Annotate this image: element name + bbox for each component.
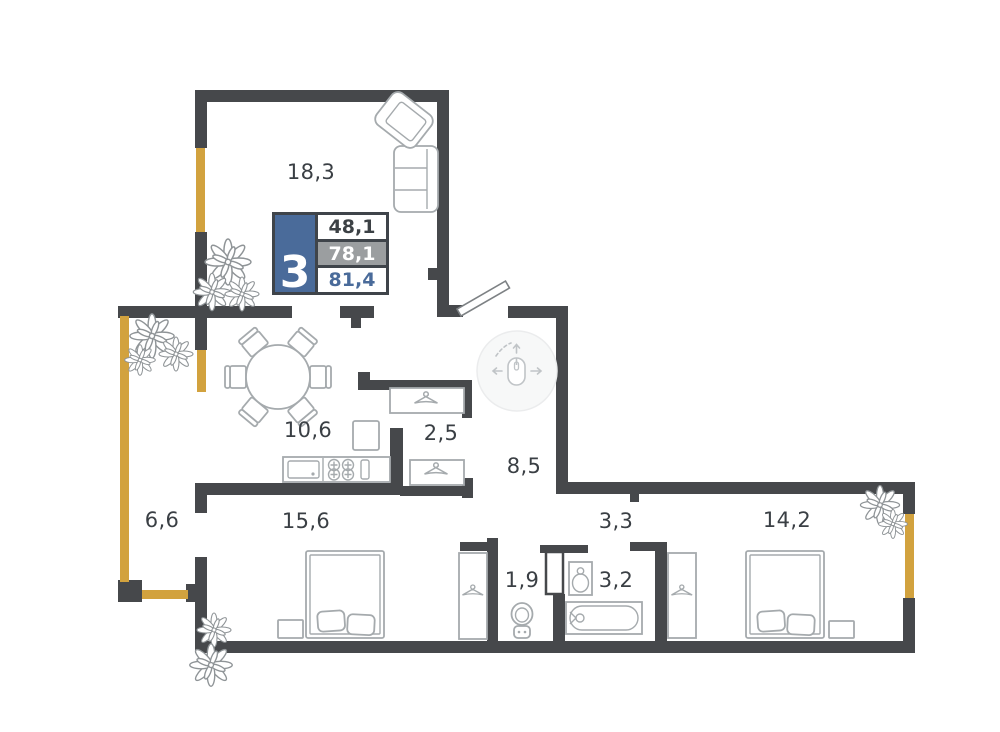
wardrobe-icon — [390, 388, 464, 413]
area-value-1: 48,1 — [318, 215, 386, 239]
service-duct — [546, 552, 563, 594]
wall-rightwing-top — [556, 482, 915, 494]
wardrobe-icon — [668, 553, 696, 638]
wall-hall-right — [556, 306, 568, 494]
nightstand-icon — [829, 621, 854, 638]
area-value-2: 78,1 — [318, 239, 386, 269]
floor-plan-drawing — [0, 0, 1000, 732]
wall-balcony-corner-left — [118, 580, 142, 602]
bathtub-icon — [566, 602, 642, 634]
nightstand-icon — [278, 620, 303, 638]
area-values: 48,1 78,1 81,4 — [318, 215, 386, 292]
wall-bath-right — [655, 542, 667, 641]
double-bed-icon — [306, 551, 384, 638]
toilet-icon — [512, 603, 533, 638]
wall-closet-bottom — [400, 486, 462, 496]
plant-icon — [125, 314, 193, 375]
wall-closet-top-tick — [358, 372, 370, 382]
room-label-bedroom-2: 14,2 — [763, 508, 811, 532]
bath-sink-icon — [569, 562, 592, 595]
rooms-count-badge: 3 — [275, 215, 318, 292]
room-label-hallway: 8,5 — [507, 454, 542, 478]
window-bedroom2-right — [905, 514, 914, 598]
window-balcony-bottom — [142, 590, 188, 599]
fridge-icon — [353, 421, 379, 450]
entry-door — [457, 281, 509, 316]
window-balcony-left — [120, 316, 129, 582]
wardrobe-icon — [410, 460, 464, 485]
room-label-bedroom-1: 15,6 — [282, 509, 330, 533]
sofa-icon — [394, 146, 438, 212]
room-label-corridor: 3,3 — [599, 509, 634, 533]
floor-plan: 18,3 10,6 2,5 8,5 6,6 15,6 3,3 14,2 1,9 … — [0, 0, 1000, 732]
wall-wc-left-tick — [460, 542, 488, 551]
apartment-info-card: 3 48,1 78,1 81,4 — [272, 212, 389, 295]
wall-duct-below — [553, 594, 565, 641]
wall-living-right-foot — [428, 268, 438, 280]
wall-kitchen-left-top — [195, 306, 207, 350]
wardrobe-icon — [459, 553, 487, 639]
window-living-left — [196, 148, 205, 232]
room-label-bathroom: 3,2 — [599, 568, 634, 592]
window-kitchen-balcony-door — [197, 350, 206, 392]
chair-icon — [225, 366, 246, 388]
wall-bottom-main — [195, 641, 915, 653]
wall-living-left-top — [195, 90, 207, 148]
dining-table-icon — [225, 327, 331, 427]
wall-kitchen-bottom — [195, 483, 400, 495]
wall-bedroom2-right-top — [903, 482, 915, 514]
area-value-3: 81,4 — [318, 268, 386, 292]
room-label-balcony: 6,6 — [145, 508, 180, 532]
room-label-closet: 2,5 — [424, 421, 459, 445]
wall-bedroom2-door-jamb — [630, 494, 639, 502]
double-bed-icon — [746, 551, 824, 638]
wall-wc-left — [487, 538, 498, 641]
wall-living-kitchen-stub-tick — [351, 306, 361, 328]
wall-closet-mid — [390, 428, 403, 488]
wall-balcony-corner-right — [186, 584, 207, 602]
room-label-wc: 1,9 — [505, 568, 540, 592]
mouse-pan-icon[interactable] — [477, 331, 557, 411]
chair-icon — [310, 366, 331, 388]
room-label-kitchen: 10,6 — [284, 418, 332, 442]
room-label-living-room: 18,3 — [287, 160, 335, 184]
kitchen-counter-icon — [283, 457, 390, 482]
